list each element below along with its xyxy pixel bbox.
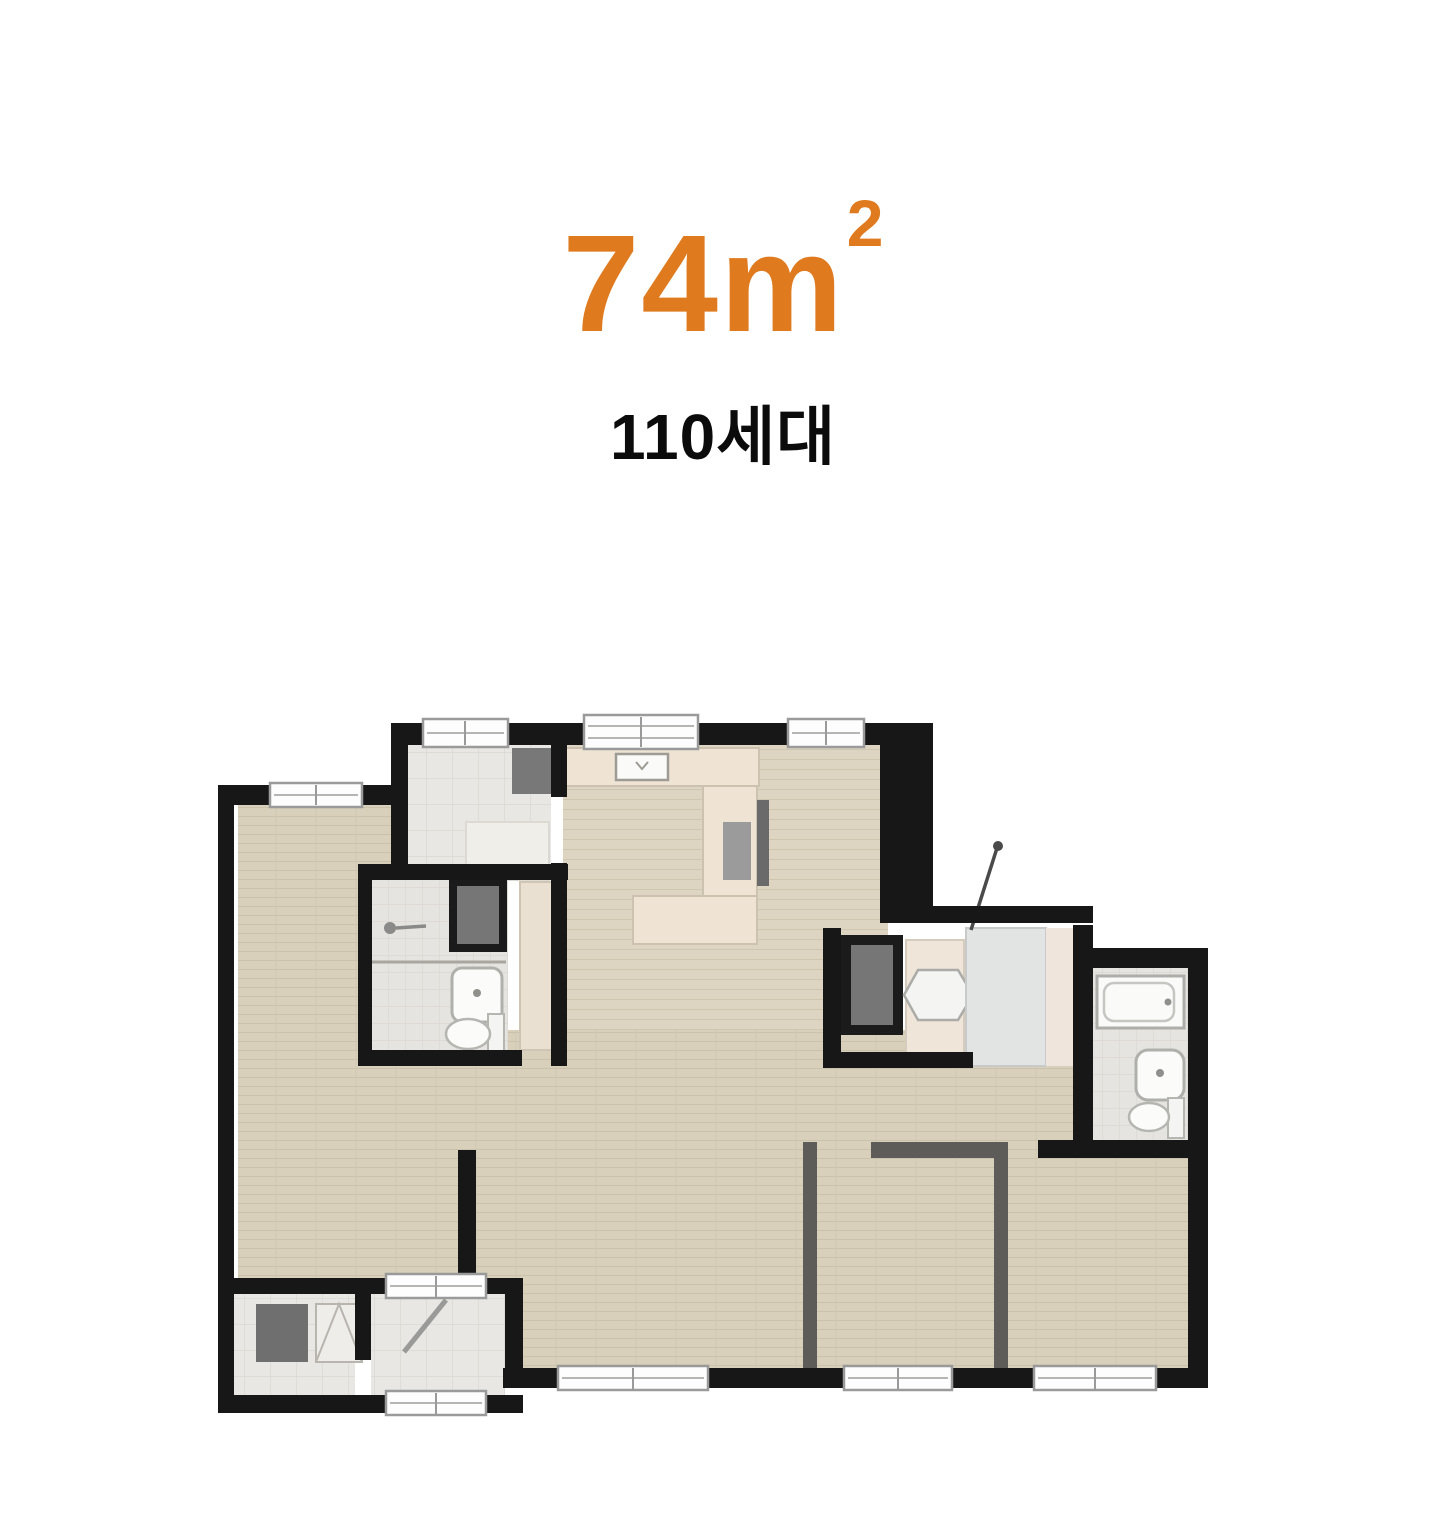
area-value: 74 [563,207,721,361]
wall-utility-left [391,785,408,866]
wall-dressing-bottom [823,1052,973,1068]
area-unit: m [720,207,845,361]
closet-dressing [851,945,893,1025]
utility-room-top-left [404,743,551,880]
wall-dressing-top [880,906,1093,923]
kitchen-sink [616,754,668,780]
tub-drain [1165,999,1172,1006]
wall-bath-right-top [1073,948,1208,968]
toilet-right-tank [1168,1098,1184,1138]
card-header: 74m2 110세대 [0,215,1446,469]
floor-plan-svg [218,700,1208,1445]
wall-bath-left-bottom [358,1050,522,1066]
wall-bath-left-side [358,864,372,1066]
shower-head-icon [384,922,396,934]
toilet-left [446,1019,490,1049]
households-subtitle: 110세대 [0,405,1446,469]
shoe-cabinet [256,1304,308,1362]
basin-drain [473,989,481,997]
wall-entrance-right [505,1294,523,1388]
wall-storage-top [218,1278,371,1294]
window-bedroom-center [844,1366,952,1390]
window-kitchen [584,715,698,749]
wash-basin-dressing [904,970,973,1020]
window-entrance-bottom [386,1391,486,1415]
window-utility [423,719,508,747]
wall-bath-right-bottom [1038,1140,1208,1158]
accent-strip [1046,928,1073,1066]
wall-dining-right [880,723,933,906]
shower-booth [966,928,1046,1066]
window-bedroom-left [270,783,362,807]
page-title: 74m2 [0,215,1446,353]
bath-cabinet [457,886,499,944]
refrigerator [757,800,769,886]
shower-arm [396,926,426,928]
wall-bath-left-top [358,864,568,880]
area-unit-exponent: 2 [847,186,886,260]
window-entrance-top [386,1274,486,1298]
wall-dressing-left [823,928,841,1068]
partition-bedroom1 [803,1142,817,1368]
cooktop [723,822,751,880]
wall-kitchen-left-up [551,745,567,797]
wall-kitchen-left [551,863,567,1066]
window-living [558,1366,708,1390]
partition-bedroom2-right [994,1142,1008,1368]
basin-right-drain [1156,1069,1164,1077]
bathroom-right [1093,968,1188,1140]
window-bedroom-right [1034,1366,1156,1390]
wall-storage-right [355,1278,371,1360]
bathroom-left [368,878,508,1054]
wall-right-outer [1188,948,1208,1388]
shower-rod-head [993,841,1003,851]
kitchen-counter-bottom [633,896,757,944]
window-dining [788,719,864,747]
toilet-right [1129,1103,1169,1131]
wall-living-left-stub [458,1150,476,1278]
wall-left-outer [218,785,234,1413]
partition-bedroom2-top [871,1142,1008,1158]
closet-utility [512,748,551,794]
floor-plan [218,700,1208,1445]
